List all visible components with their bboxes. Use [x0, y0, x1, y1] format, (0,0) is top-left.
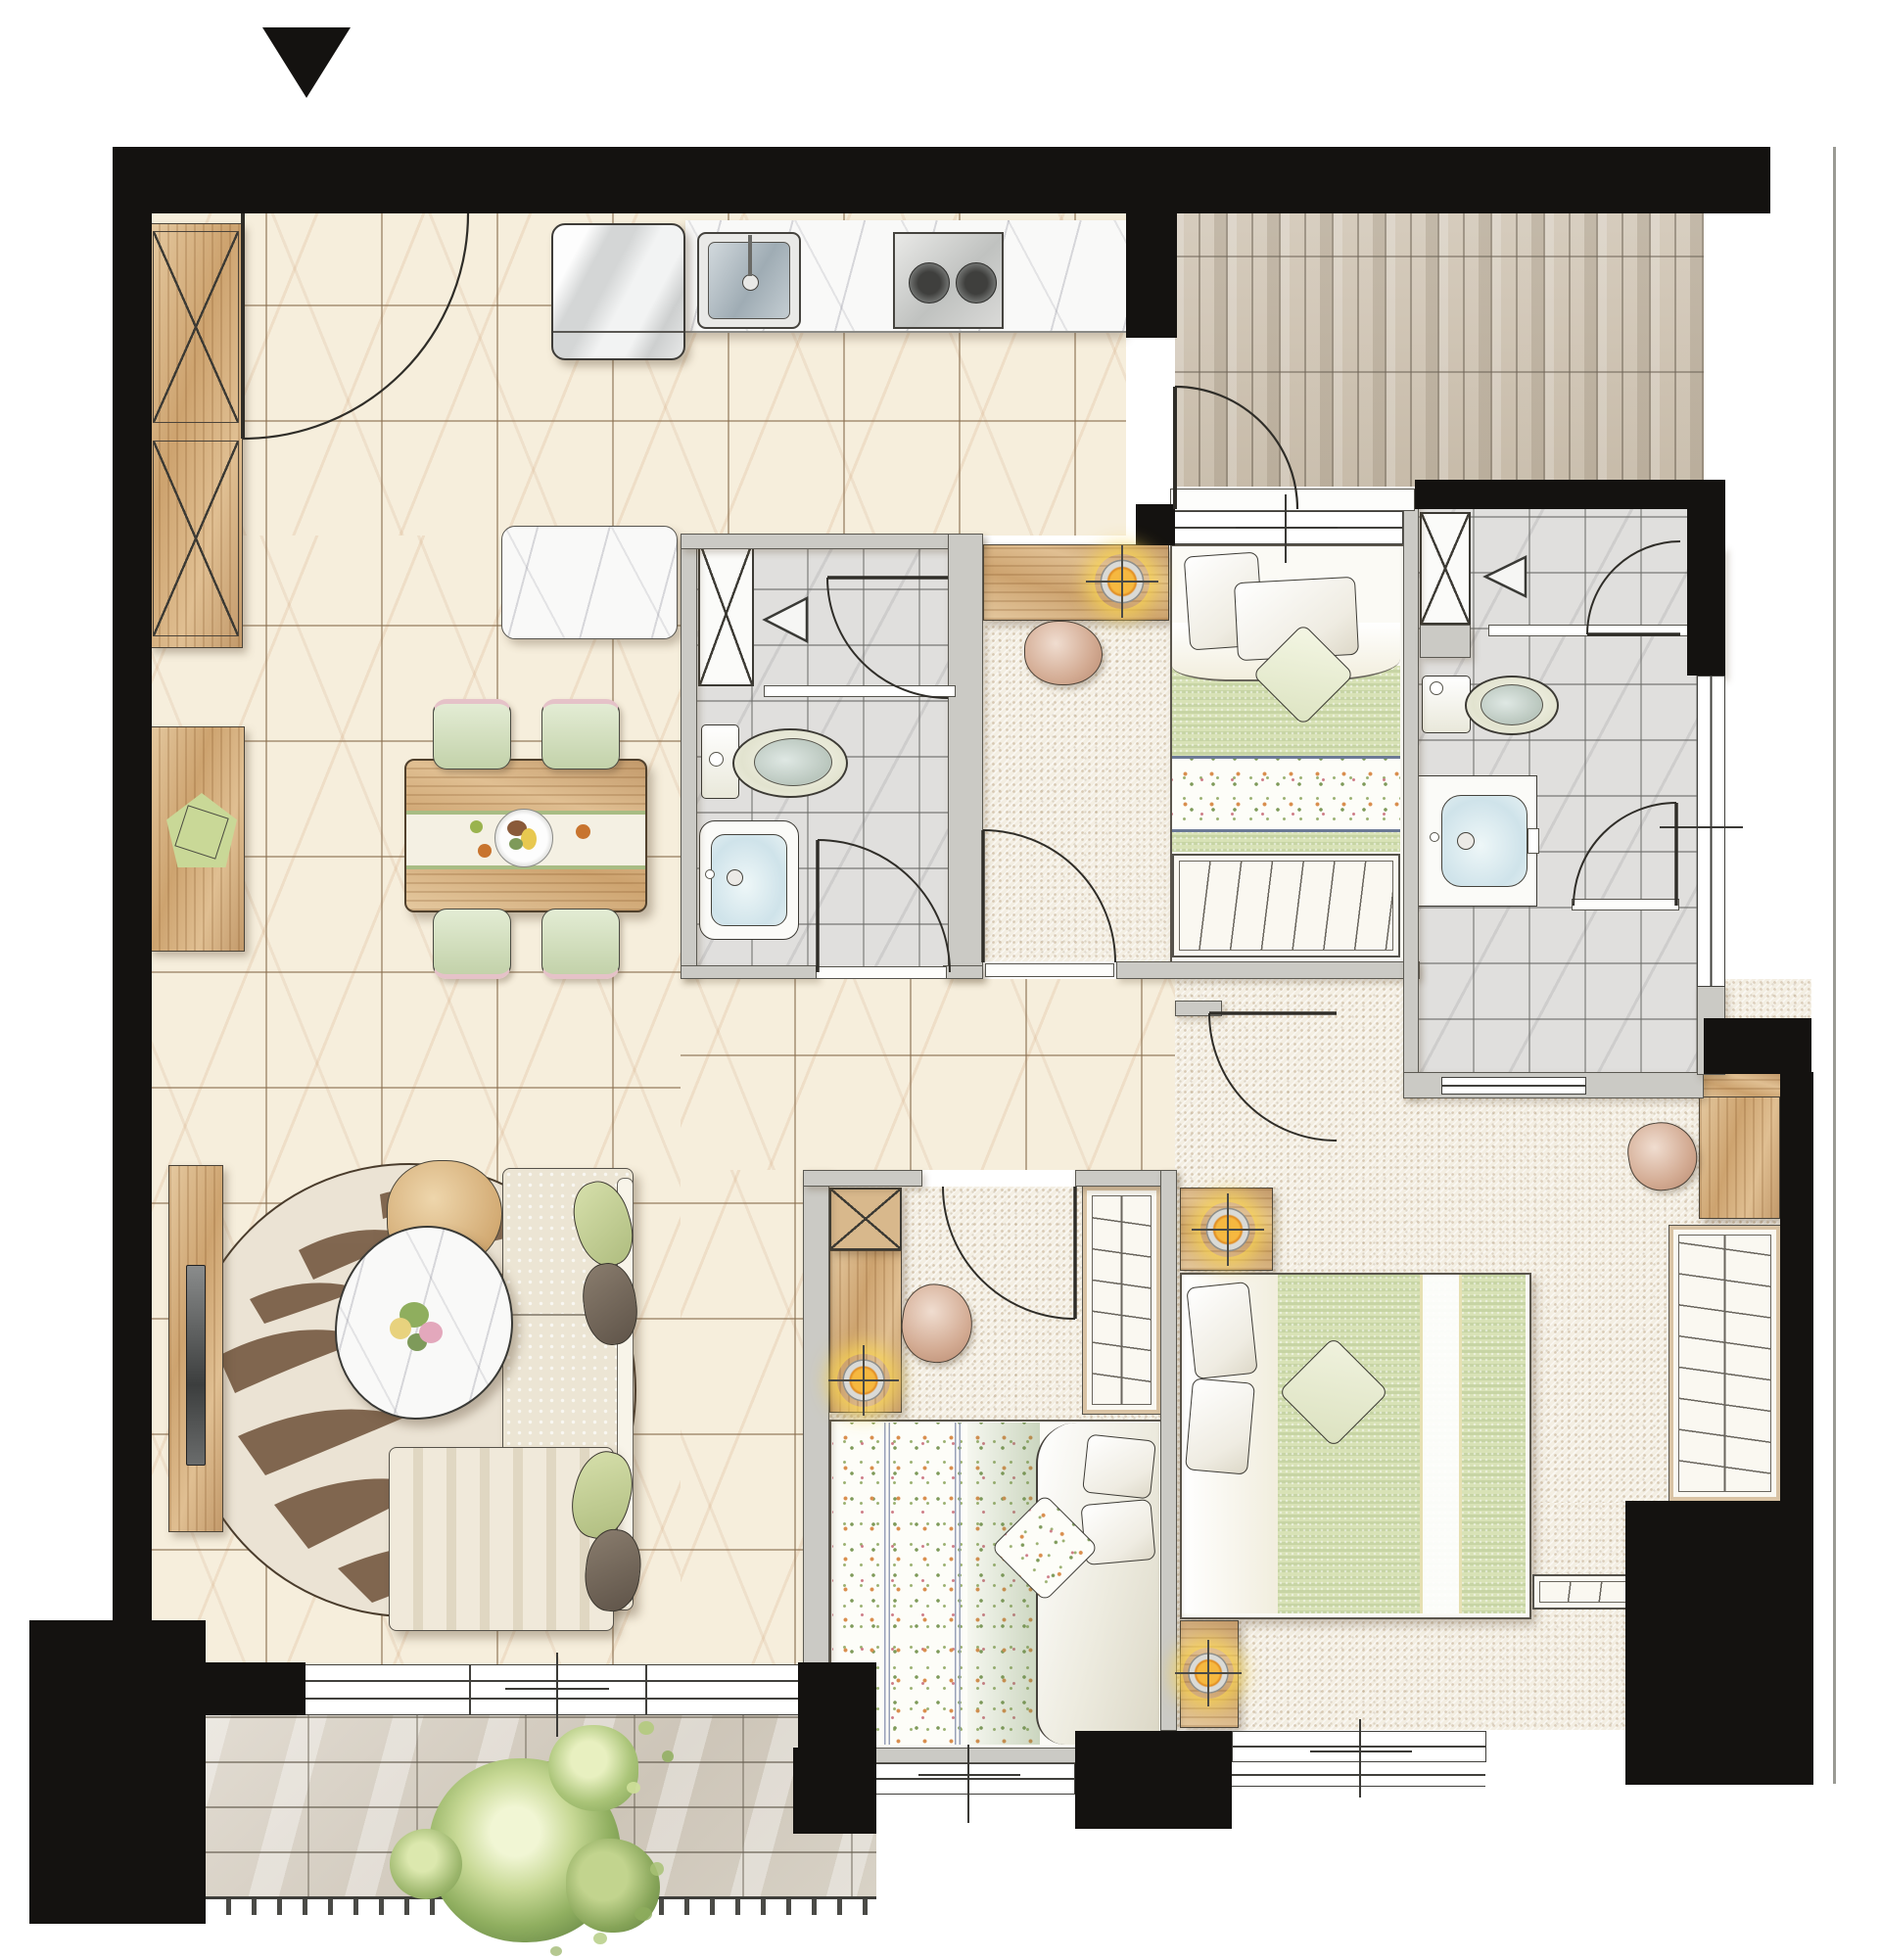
flower — [390, 1318, 411, 1339]
basin-drain — [1430, 832, 1439, 842]
plant-speck — [650, 1862, 664, 1876]
fruit — [509, 838, 523, 850]
centerline — [918, 1774, 1020, 1776]
sliding-door-balcony — [304, 1664, 813, 1715]
wall-bed2-window-stub — [1136, 504, 1175, 545]
wall-se-corner — [1625, 1501, 1813, 1785]
floor-hallway — [681, 979, 1175, 1170]
cabinet-x-mark — [153, 441, 239, 636]
wall-bath1-bottom-l — [681, 965, 818, 979]
bedroom3-wardrobe — [1083, 1187, 1160, 1414]
bedroom3-cabinet — [829, 1188, 902, 1250]
wall-sw-corner — [29, 1620, 206, 1924]
master-wardrobe — [1669, 1226, 1780, 1501]
basin-faucet — [727, 869, 743, 886]
plant-speck — [550, 1946, 562, 1956]
wall-bath1-top — [681, 534, 983, 549]
plant-blob — [548, 1725, 638, 1811]
floor-hall-south — [681, 1170, 803, 1664]
basin-bowl — [711, 834, 787, 926]
plant-speck — [627, 1782, 640, 1794]
bed2-floral-band — [1172, 756, 1400, 832]
wall-balcony-stub — [201, 1662, 305, 1715]
flower — [419, 1322, 443, 1343]
dining-chair — [433, 909, 511, 979]
downlight — [1200, 1202, 1255, 1257]
plant-speck — [593, 1933, 607, 1944]
centerline — [967, 1745, 969, 1823]
downlight — [1095, 554, 1150, 609]
pillow — [1082, 1434, 1156, 1500]
plant-speck — [634, 1907, 652, 1921]
wall-master-east — [1780, 1072, 1813, 1503]
fruit — [478, 844, 492, 858]
basin-side-tab — [1527, 828, 1539, 854]
window-bedroom3-south — [874, 1763, 1075, 1795]
cabinet-x-mark — [153, 231, 239, 423]
pillow — [1186, 1282, 1257, 1379]
threshold-bath1 — [816, 966, 947, 979]
shaft-ledge — [1420, 625, 1471, 658]
toilet-tank — [1422, 676, 1471, 733]
refrigerator — [551, 223, 685, 360]
wall-bed3-top-l — [803, 1170, 922, 1187]
wall-bed2-bottom — [1116, 961, 1420, 979]
site-boundary-line — [1833, 147, 1836, 1784]
burner — [956, 262, 997, 303]
bed2-quilt-foot — [1172, 829, 1400, 852]
master-desk — [1699, 1097, 1780, 1219]
fruit — [521, 828, 537, 850]
kitchen-island — [501, 526, 678, 639]
centerline — [1285, 494, 1287, 563]
floor-plan — [0, 0, 1880, 1960]
window-bath2-south — [1441, 1077, 1586, 1095]
basin-drain — [705, 869, 715, 879]
wall-bath2-top — [1415, 480, 1687, 509]
masterbed-duvet — [1278, 1275, 1526, 1613]
shower-screen — [1488, 625, 1697, 636]
refrigerator-door-line — [553, 331, 683, 333]
faucet-stem — [748, 235, 752, 276]
plant-speck — [638, 1721, 654, 1735]
centerline — [1310, 1750, 1412, 1752]
centerline — [505, 1688, 609, 1690]
centerline — [1660, 826, 1743, 828]
wall-top — [113, 147, 1770, 213]
faucet — [742, 274, 759, 291]
shaft-x — [1420, 512, 1471, 625]
fruit — [470, 820, 483, 833]
pillow — [1185, 1377, 1255, 1474]
threshold-foyer — [1170, 489, 1415, 511]
bedroom2-chair — [1024, 621, 1103, 685]
fruit — [576, 824, 590, 839]
shower-screen — [764, 685, 956, 697]
bed2-foot-rack — [1172, 854, 1400, 957]
master-desk-return — [1697, 1074, 1780, 1098]
threshold-bed2 — [985, 963, 1114, 977]
burner — [909, 262, 950, 303]
bed3-ribbon-stripe — [884, 1423, 890, 1745]
window-bath2-east — [1697, 676, 1725, 987]
entry-direction-triangle — [262, 27, 351, 98]
basin-faucet — [1457, 832, 1475, 850]
downlight — [1183, 1648, 1234, 1699]
tv — [186, 1265, 206, 1466]
toilet-bowl-inner — [1480, 684, 1543, 725]
wall-bath1-bed2 — [948, 534, 983, 979]
wall-bath1-bottom-r — [943, 965, 983, 979]
wall-bed3-left — [803, 1170, 829, 1748]
wall-master-ne — [1704, 1018, 1811, 1074]
dining-chair — [541, 699, 620, 770]
floor-foyer — [1175, 210, 1704, 487]
wall-bath1-left — [681, 534, 697, 979]
wall-east-col-top — [1687, 480, 1725, 676]
wall-left — [113, 147, 152, 1627]
flush-button — [709, 752, 724, 767]
threshold-bath2 — [1572, 899, 1679, 910]
centerline — [1359, 1719, 1361, 1797]
wall-bed3-master — [1160, 1170, 1177, 1731]
dining-chair — [541, 909, 620, 979]
master-bench — [1532, 1574, 1638, 1610]
plant-speck — [662, 1750, 674, 1762]
wall-kitchen-foyer-stub — [1126, 147, 1177, 338]
basin-bowl — [1441, 795, 1527, 887]
wall-bed3-master-post — [1075, 1731, 1232, 1829]
toilet-bowl-inner — [754, 738, 832, 786]
shaft-x — [698, 541, 754, 686]
plant-blob — [390, 1829, 462, 1899]
centerline — [1236, 527, 1338, 529]
flush-button — [1430, 681, 1443, 695]
dining-chair — [433, 699, 511, 770]
downlight — [837, 1354, 890, 1407]
wall-bed3-window-post-w — [793, 1748, 876, 1834]
pillow — [1080, 1499, 1155, 1565]
centerline — [556, 1653, 558, 1737]
wall-bath2-left — [1403, 490, 1419, 1097]
bed3-ribbon-stripe — [955, 1423, 961, 1745]
wall-master-door-stub — [1175, 1001, 1222, 1016]
